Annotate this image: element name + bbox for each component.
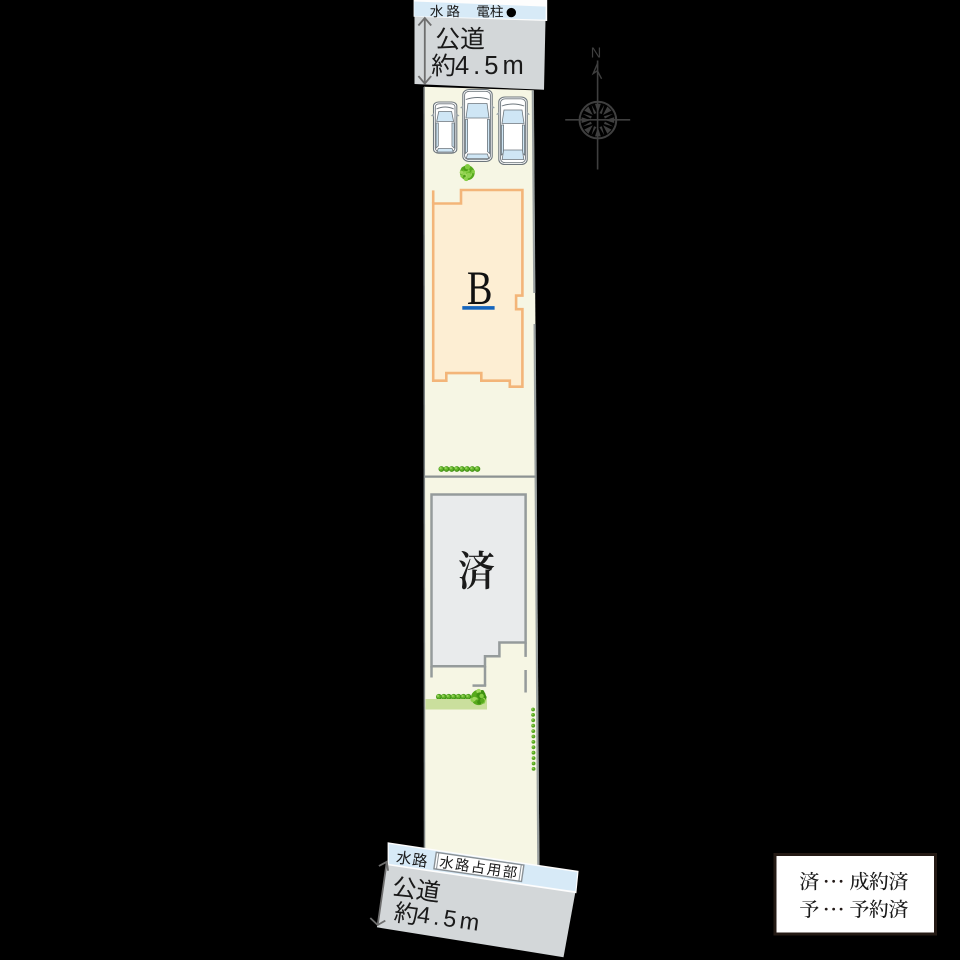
svg-text:N: N — [591, 46, 601, 62]
svg-text:4.5m: 4.5m — [455, 52, 528, 80]
